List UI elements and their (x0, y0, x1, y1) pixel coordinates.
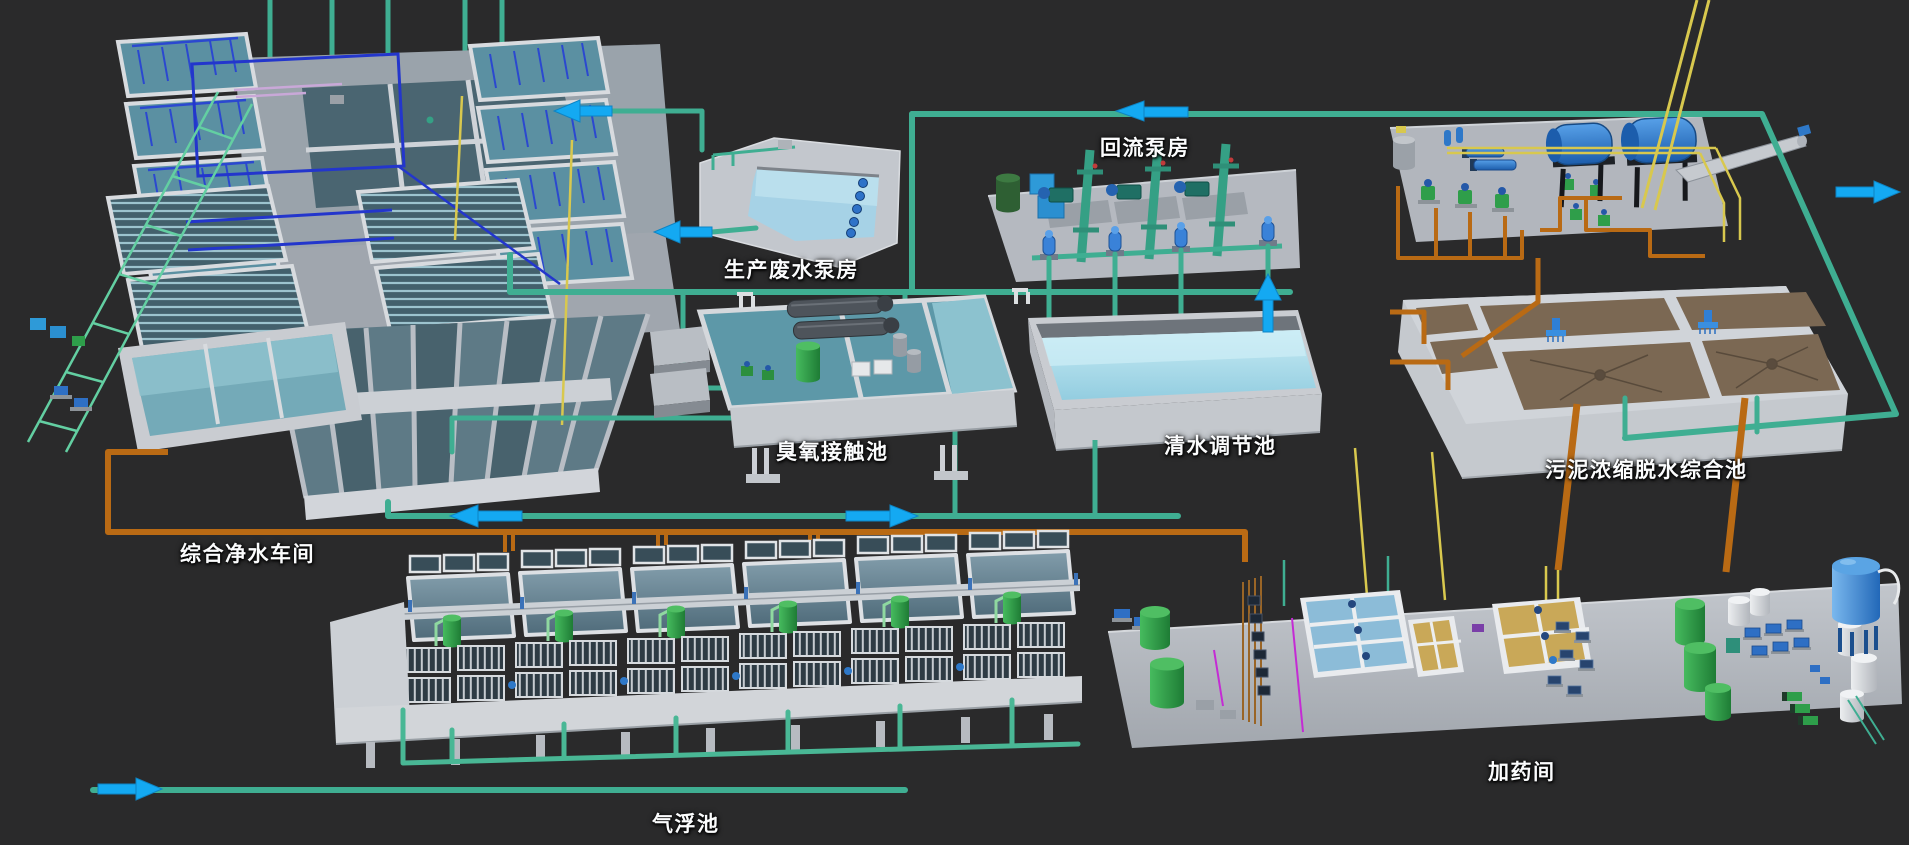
sludge-thickening-dewatering-pool[interactable] (1398, 286, 1848, 478)
teal-cabinet (1726, 638, 1740, 653)
preparation-basin-blue (1300, 590, 1414, 678)
storage-tank-dark-green (996, 174, 1020, 213)
ozone-tank-green (796, 342, 820, 383)
preparation-basin-small (1408, 616, 1464, 677)
air-flotation-pool[interactable] (330, 531, 1082, 768)
facility-label-air-flotation-pool[interactable]: 气浮池 (652, 808, 720, 838)
facility-label-clear-water-regulating-pool[interactable]: 清水调节池 (1164, 430, 1277, 460)
facility-label-production-wastewater-pump-house[interactable]: 生产废水泵房 (724, 254, 859, 284)
facility-label-reflux-pump-house[interactable]: 回流泵房 (1100, 132, 1190, 162)
plant-3d-scene: 综合净水车间 生产废水泵房 回流泵房 臭氧接触池 清水调节池 污泥浓缩脱水综合池… (0, 0, 1909, 845)
clear-water-regulating-pool[interactable] (1028, 310, 1322, 450)
facility-label-sludge-thickening-dewatering-pool[interactable]: 污泥浓缩脱水综合池 (1545, 454, 1748, 484)
plant-3d-render (0, 0, 1909, 845)
facility-label-ozone-contact-pool[interactable]: 臭氧接触池 (776, 436, 889, 466)
facility-label-water-purification-workshop[interactable]: 综合净水车间 (180, 538, 315, 568)
facility-label-dosing-room[interactable]: 加药间 (1488, 756, 1556, 786)
